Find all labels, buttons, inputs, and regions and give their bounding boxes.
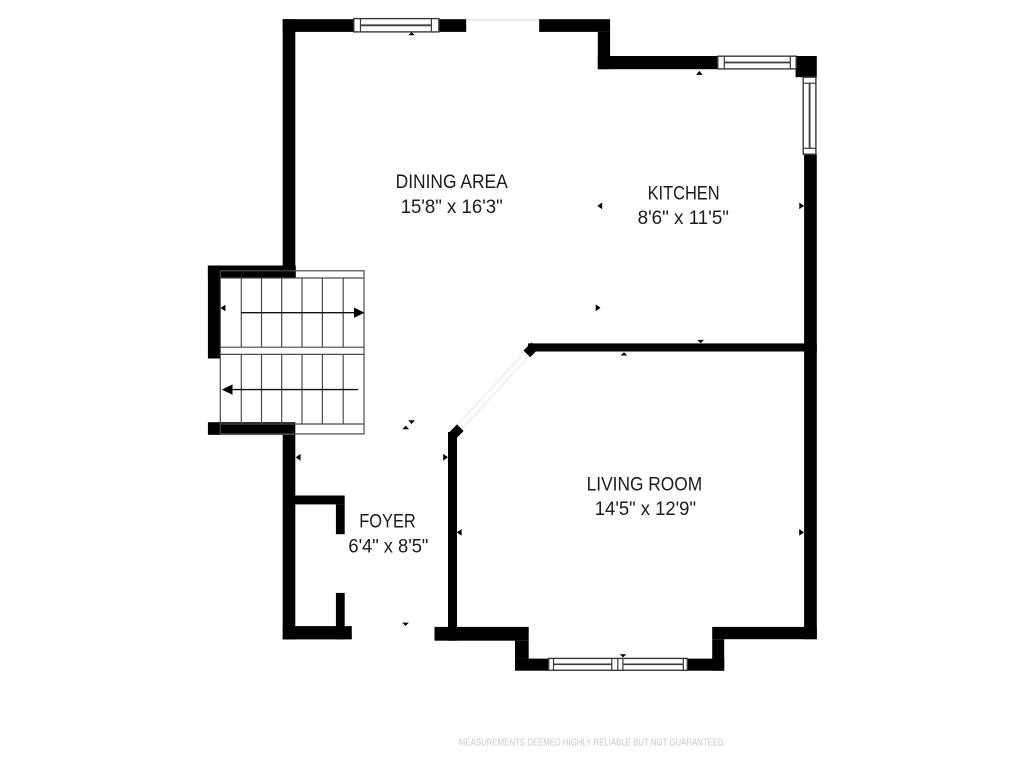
svg-text:15'8" x 16'3": 15'8" x 16'3" (401, 197, 503, 218)
svg-text:DINING AREA: DINING AREA (396, 172, 508, 193)
svg-text:8'6" x 11'5": 8'6" x 11'5" (638, 208, 730, 229)
svg-text:14'5" x 12'9": 14'5" x 12'9" (595, 499, 696, 520)
svg-text:6'4" x 8'5": 6'4" x 8'5" (348, 536, 428, 557)
svg-text:FOYER: FOYER (359, 512, 416, 533)
svg-text:MEASUREMENTS DEEMED HIGHLY REL: MEASUREMENTS DEEMED HIGHLY RELIABLE BUT … (459, 738, 726, 749)
svg-text:KITCHEN: KITCHEN (648, 183, 720, 204)
svg-text:LIVING ROOM: LIVING ROOM (587, 475, 703, 496)
